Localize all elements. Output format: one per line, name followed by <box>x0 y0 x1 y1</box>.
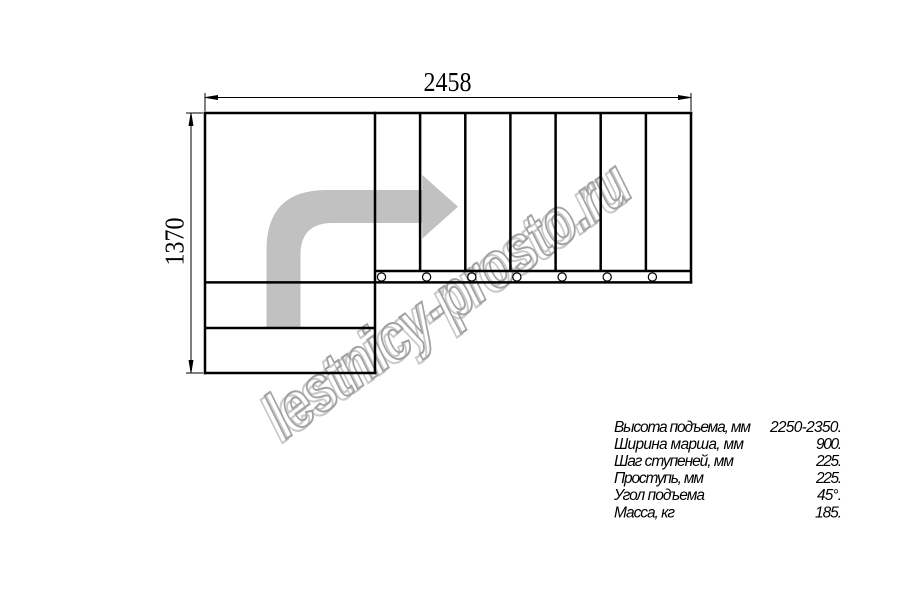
svg-text:225.: 225. <box>815 470 842 487</box>
svg-text:Высота подъема, мм: Высота подъема, мм <box>614 419 751 436</box>
svg-text:2250-2350.: 2250-2350. <box>769 419 842 436</box>
svg-text:lestnicy-prosto.ru: lestnicy-prosto.ru <box>251 145 644 451</box>
svg-text:2458: 2458 <box>424 67 472 97</box>
svg-text:Шаг ступеней, мм: Шаг ступеней, мм <box>614 453 734 470</box>
svg-text:Ширина марша, мм: Ширина марша, мм <box>614 436 744 453</box>
svg-text:Проступь, мм: Проступь, мм <box>614 470 704 487</box>
svg-text:45°.: 45°. <box>817 487 842 504</box>
svg-text:Угол подъема: Угол подъема <box>613 487 705 504</box>
svg-text:1370: 1370 <box>160 218 190 266</box>
svg-text:900.: 900. <box>816 436 842 453</box>
svg-text:185.: 185. <box>815 504 842 521</box>
svg-text:225.: 225. <box>815 453 842 470</box>
svg-text:Масса, кг: Масса, кг <box>614 504 675 521</box>
